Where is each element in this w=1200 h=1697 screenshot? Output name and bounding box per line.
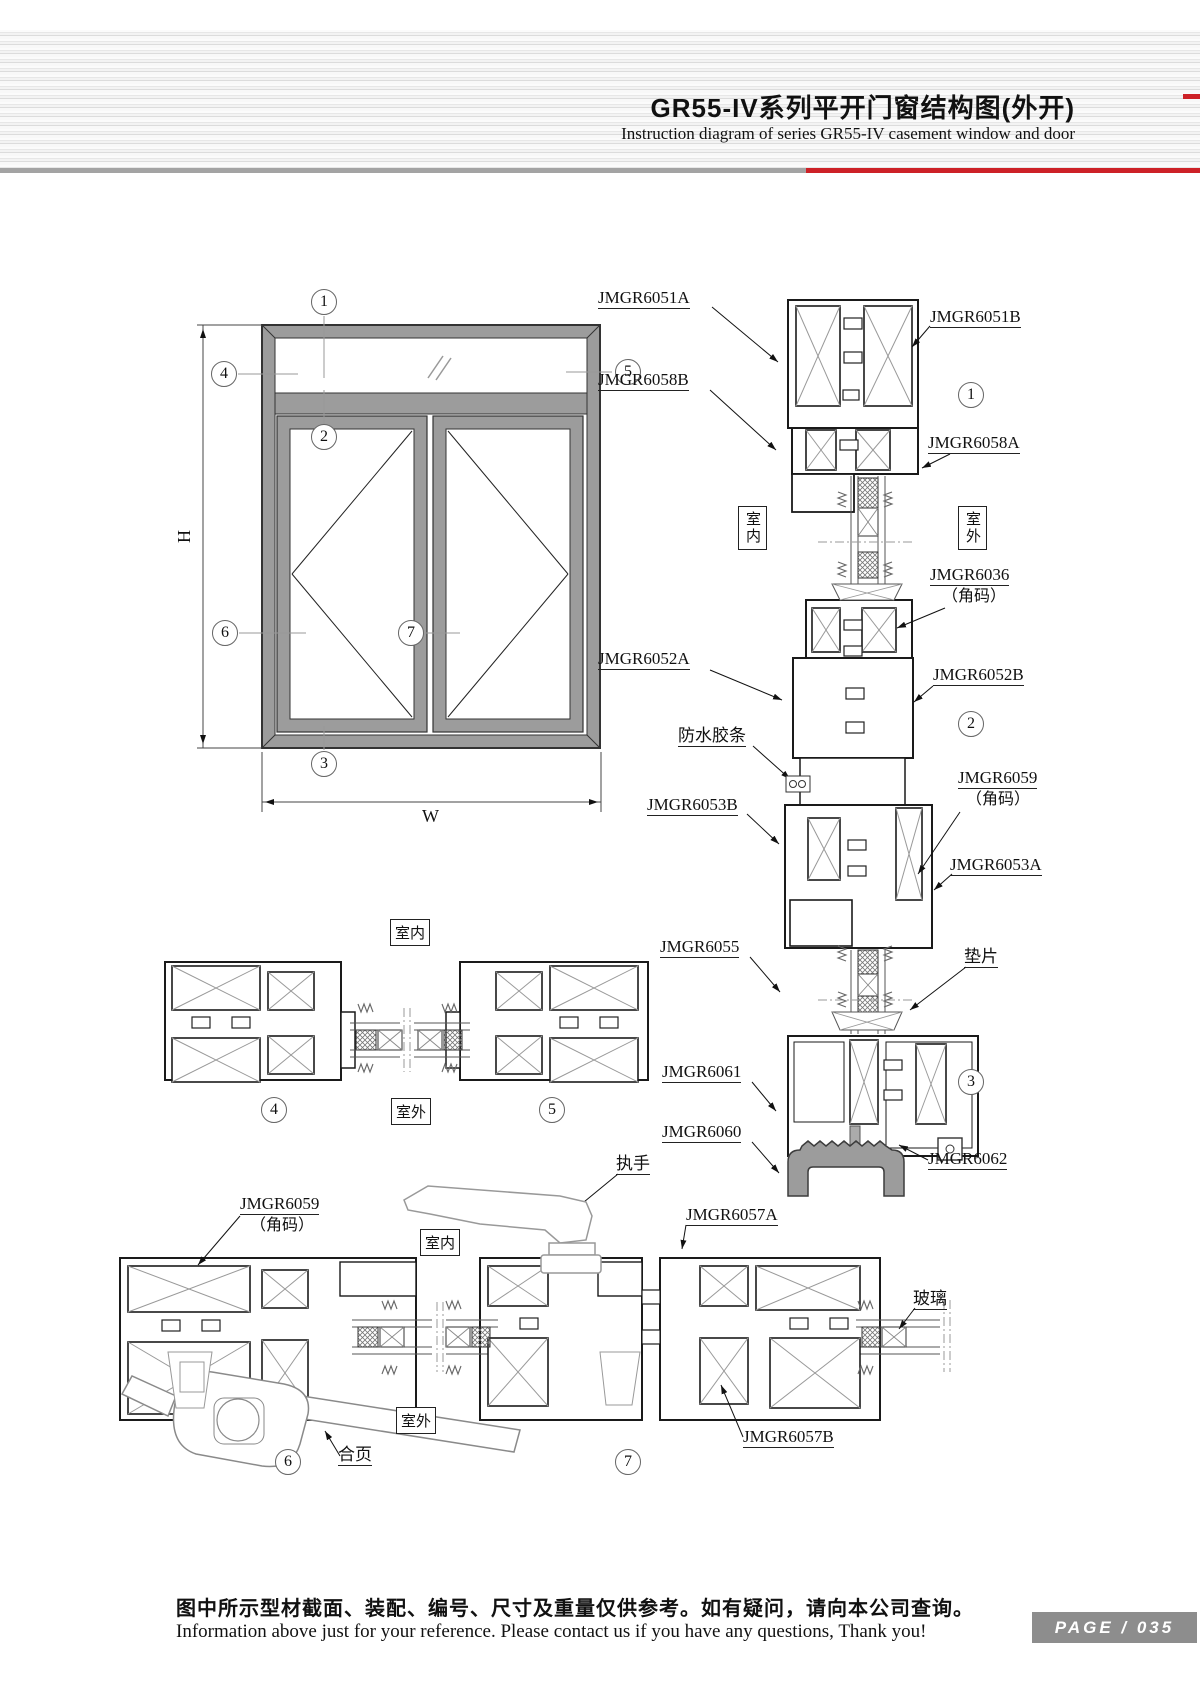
callout-1: 1 (311, 289, 337, 315)
label-jmgr6051b: JMGR6051B (930, 308, 1021, 328)
label-jmgr6053b: JMGR6053B (647, 796, 738, 816)
label-jmgr6060: JMGR6060 (662, 1123, 741, 1143)
room-outdoor-mid: 室外 (391, 1098, 431, 1125)
callout-6: 6 (212, 620, 238, 646)
label-jmgr6036: JMGR6036 (930, 566, 1009, 586)
section-callout-6: 6 (275, 1449, 301, 1475)
page-number-badge: PAGE / 035 (1032, 1612, 1197, 1643)
label-jmgr6058a: JMGR6058A (928, 434, 1020, 454)
dim-label-w: W (422, 806, 439, 827)
callout-3: 3 (311, 751, 337, 777)
label-jmgr6052a: JMGR6052A (598, 650, 690, 670)
label-handle: 执手 (616, 1155, 650, 1175)
technical-drawing (0, 0, 1200, 1697)
room-outdoor-vertical: 室外 (958, 506, 987, 550)
room-outdoor-bottom: 室外 (396, 1407, 436, 1434)
section-callout-1: 1 (958, 382, 984, 408)
label-jmgr6059-bottom: JMGR6059 (240, 1195, 319, 1215)
label-jmgr6055: JMGR6055 (660, 938, 739, 958)
label-jmgr6061: JMGR6061 (662, 1063, 741, 1083)
footer-note-zh: 图中所示型材截面、装配、编号、尺寸及重量仅供参考。如有疑问，请向本公司查询。 (176, 1592, 974, 1621)
elevation-drawing (197, 325, 601, 812)
label-jmgr6053a: JMGR6053A (950, 856, 1042, 876)
label-jmgr6059-top: JMGR6059 (958, 769, 1037, 789)
label-jmgr6051a: JMGR6051A (598, 289, 690, 309)
callout-4: 4 (211, 361, 237, 387)
footer-note-en: Information above just for your referenc… (176, 1621, 926, 1643)
dim-label-h: H (174, 530, 195, 543)
label-jmgr6052b: JMGR6052B (933, 666, 1024, 686)
label-shim: 垫片 (964, 948, 998, 968)
label-hinge: 合页 (338, 1446, 372, 1466)
label-waterproof-strip: 防水胶条 (678, 727, 746, 747)
catalog-page: GR55-IV系列平开门窗结构图(外开) Instruction diagram… (0, 0, 1200, 1697)
section-callout-7: 7 (615, 1449, 641, 1475)
section-callout-5: 5 (539, 1097, 565, 1123)
callout-2: 2 (311, 424, 337, 450)
section-callout-2: 2 (958, 711, 984, 737)
room-indoor-bottom: 室内 (420, 1229, 460, 1256)
label-jmgr6059-bottom-sub: （角码） (250, 1218, 314, 1235)
room-indoor-mid: 室内 (390, 919, 430, 946)
room-indoor-vertical: 室内 (738, 506, 767, 550)
section-callout-4: 4 (261, 1097, 287, 1123)
label-jmgr6057a: JMGR6057A (686, 1206, 778, 1226)
label-jmgr6058b: JMGR6058B (598, 371, 689, 391)
label-jmgr6062: JMGR6062 (928, 1150, 1007, 1170)
label-jmgr6057b: JMGR6057B (743, 1428, 834, 1448)
label-glass: 玻璃 (913, 1290, 947, 1310)
label-jmgr6059-top-sub: （角码） (966, 792, 1030, 809)
callout-7: 7 (398, 620, 424, 646)
gasket-clip (786, 776, 810, 792)
section-callout-3: 3 (958, 1069, 984, 1095)
label-jmgr6036-sub: （角码） (942, 589, 1006, 606)
